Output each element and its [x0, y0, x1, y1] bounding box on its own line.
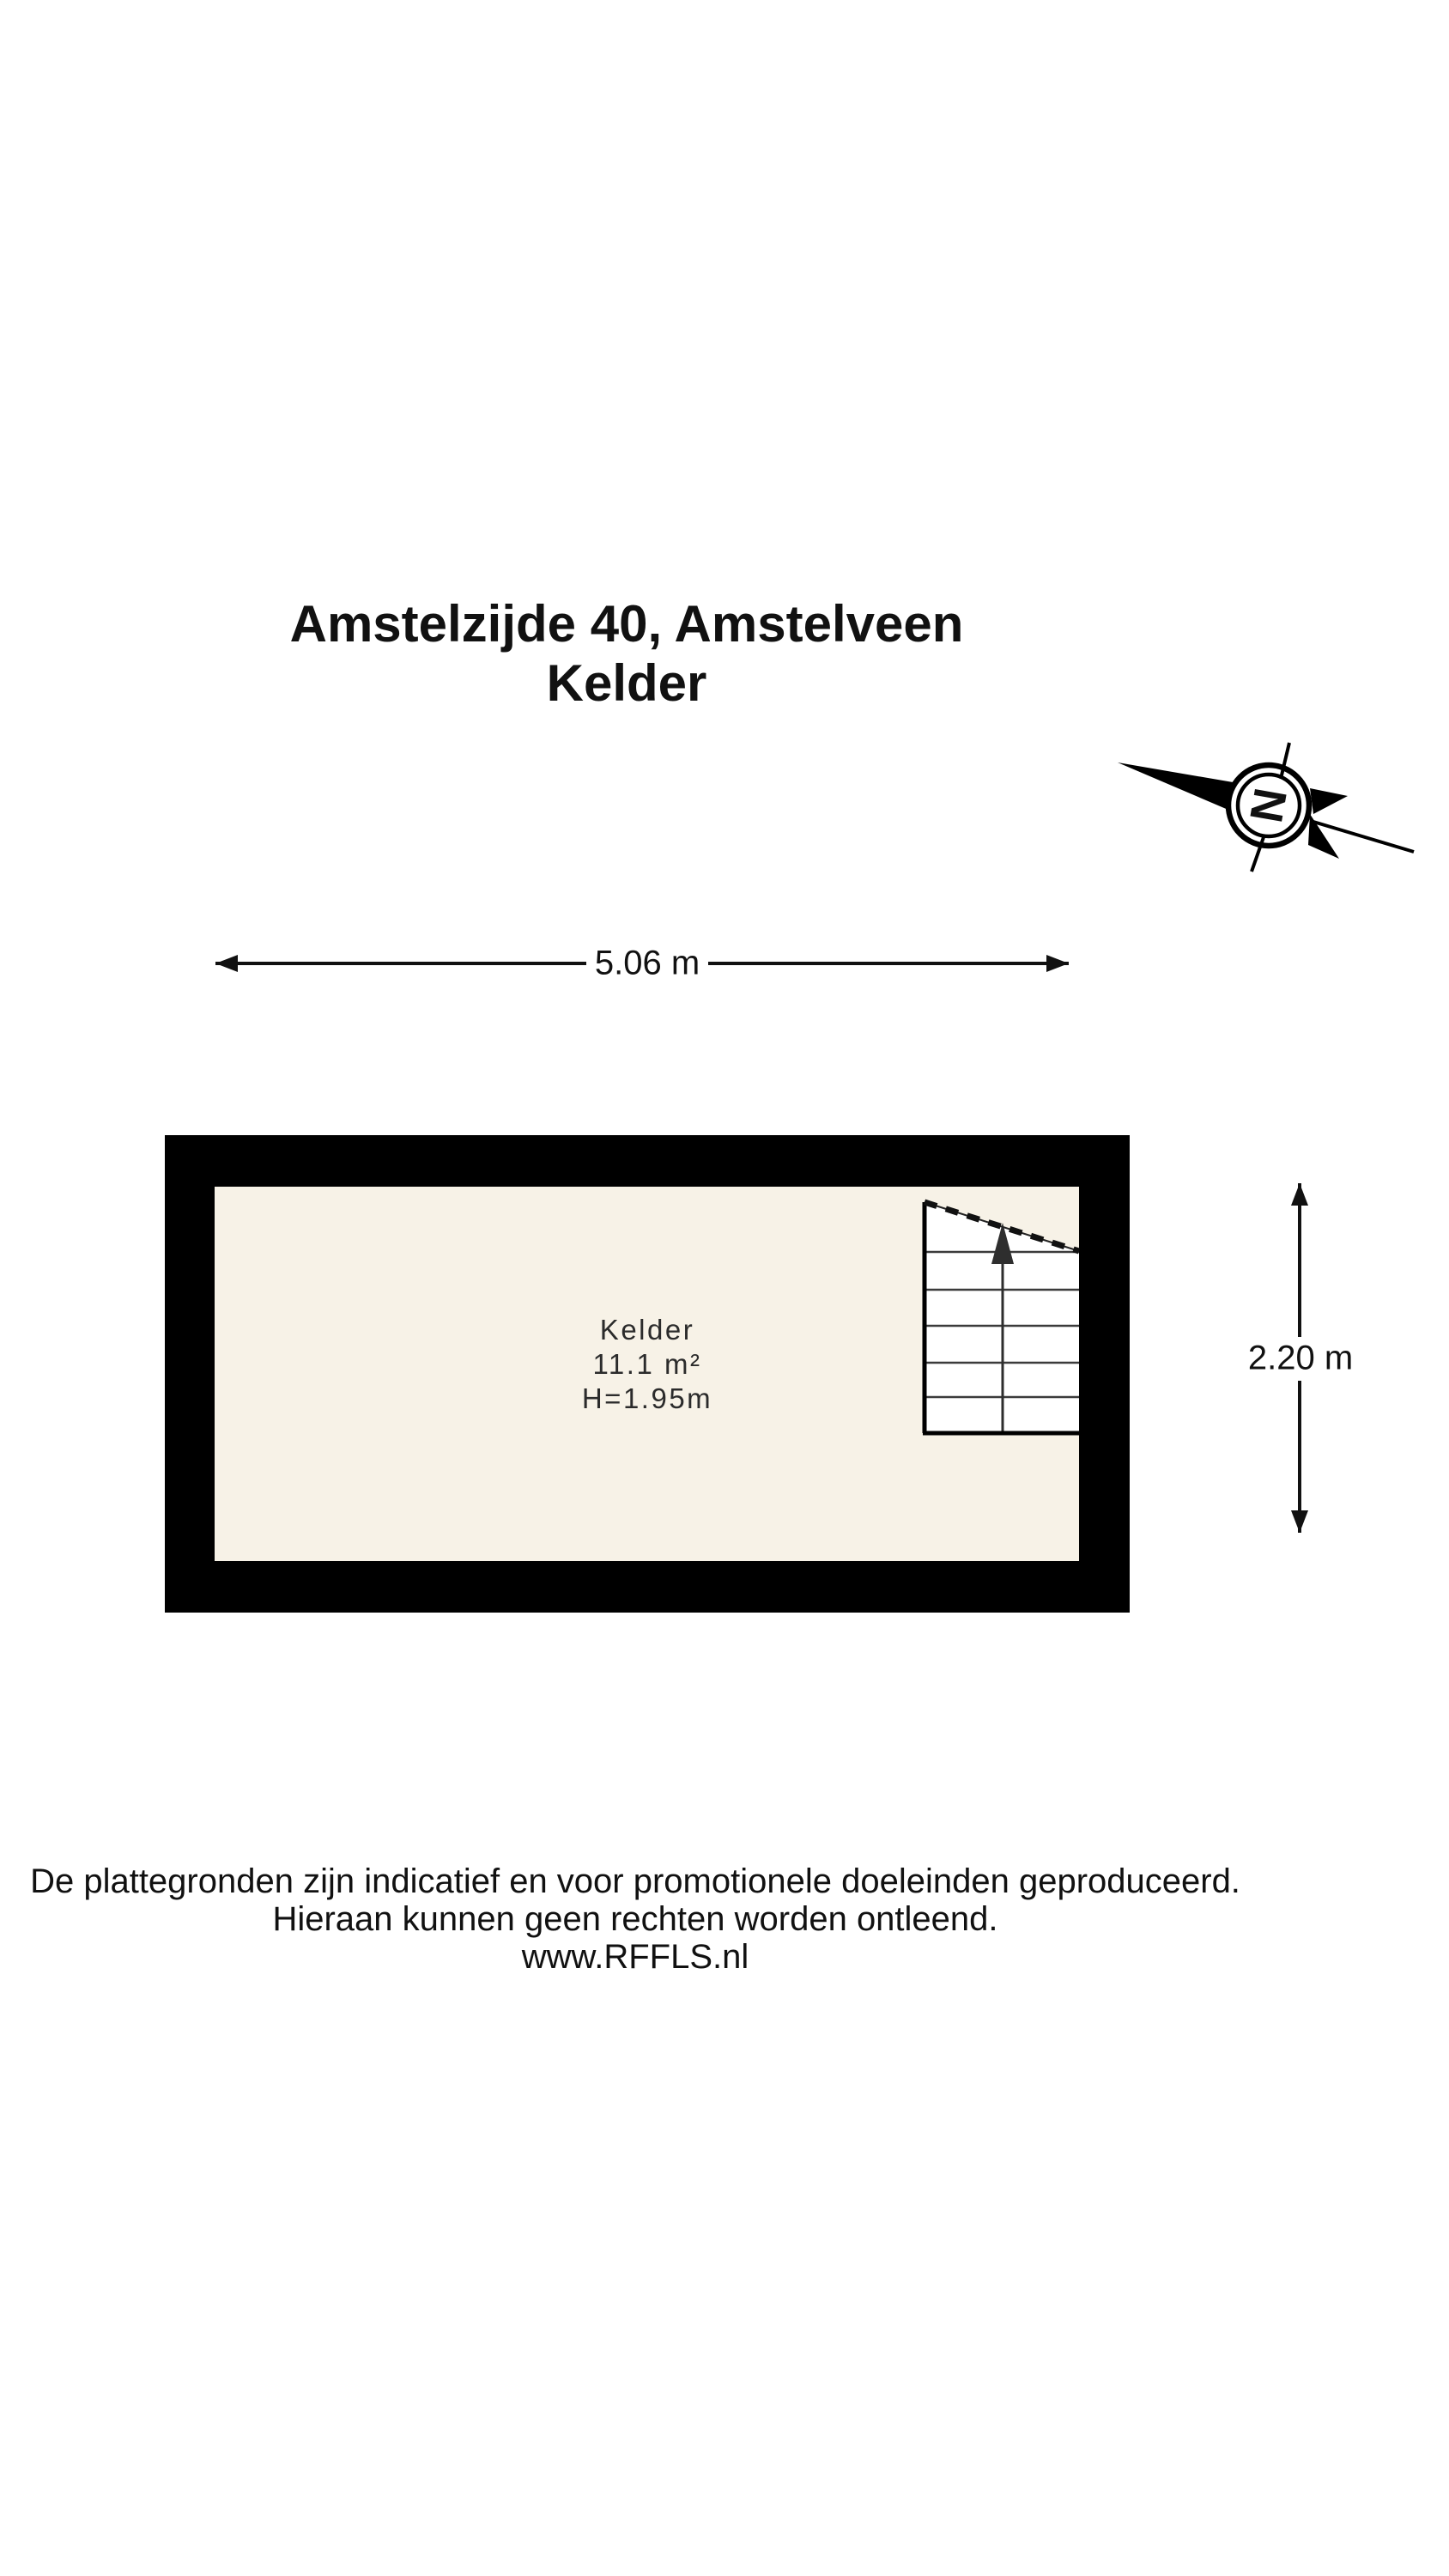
page-title: Amstelzijde 40, Amstelveen Kelder — [0, 594, 1253, 713]
compass-needle-west-point — [1118, 762, 1243, 813]
footer-website: www.RFFLS.nl — [0, 1938, 1270, 1976]
floorplan-page: Amstelzijde 40, Amstelveen Kelder N 5.06… — [0, 0, 1449, 2576]
footer-disclaimer: De plattegronden zijn indicatief en voor… — [0, 1862, 1270, 1976]
footer-line-1: De plattegronden zijn indicatief en voor… — [0, 1862, 1270, 1900]
footer-line-2: Hieraan kunnen geen rechten worden ontle… — [0, 1900, 1270, 1938]
room-area: 11.1 m² — [582, 1347, 712, 1382]
width-dim-arrowhead-right — [1046, 955, 1069, 972]
depth-dim-arrowhead-bottom — [1291, 1510, 1308, 1533]
north-compass-icon: N — [1107, 730, 1434, 884]
depth-dim-arrowhead-top — [1291, 1183, 1308, 1206]
page-title-floor: Kelder — [0, 653, 1253, 713]
page-title-address: Amstelzijde 40, Amstelveen — [0, 594, 1253, 653]
room-ceiling-height: H=1.95m — [582, 1382, 712, 1416]
room-name: Kelder — [582, 1313, 712, 1347]
room-label: Kelder 11.1 m² H=1.95m — [582, 1313, 712, 1416]
compass-star-lower-point — [1308, 814, 1339, 859]
width-dim-arrowhead-left — [215, 955, 238, 972]
compass-star-upper-point — [1310, 788, 1348, 814]
width-dimension-label: 5.06 m — [590, 945, 705, 983]
depth-dimension-label: 2.20 m — [1243, 1340, 1358, 1378]
